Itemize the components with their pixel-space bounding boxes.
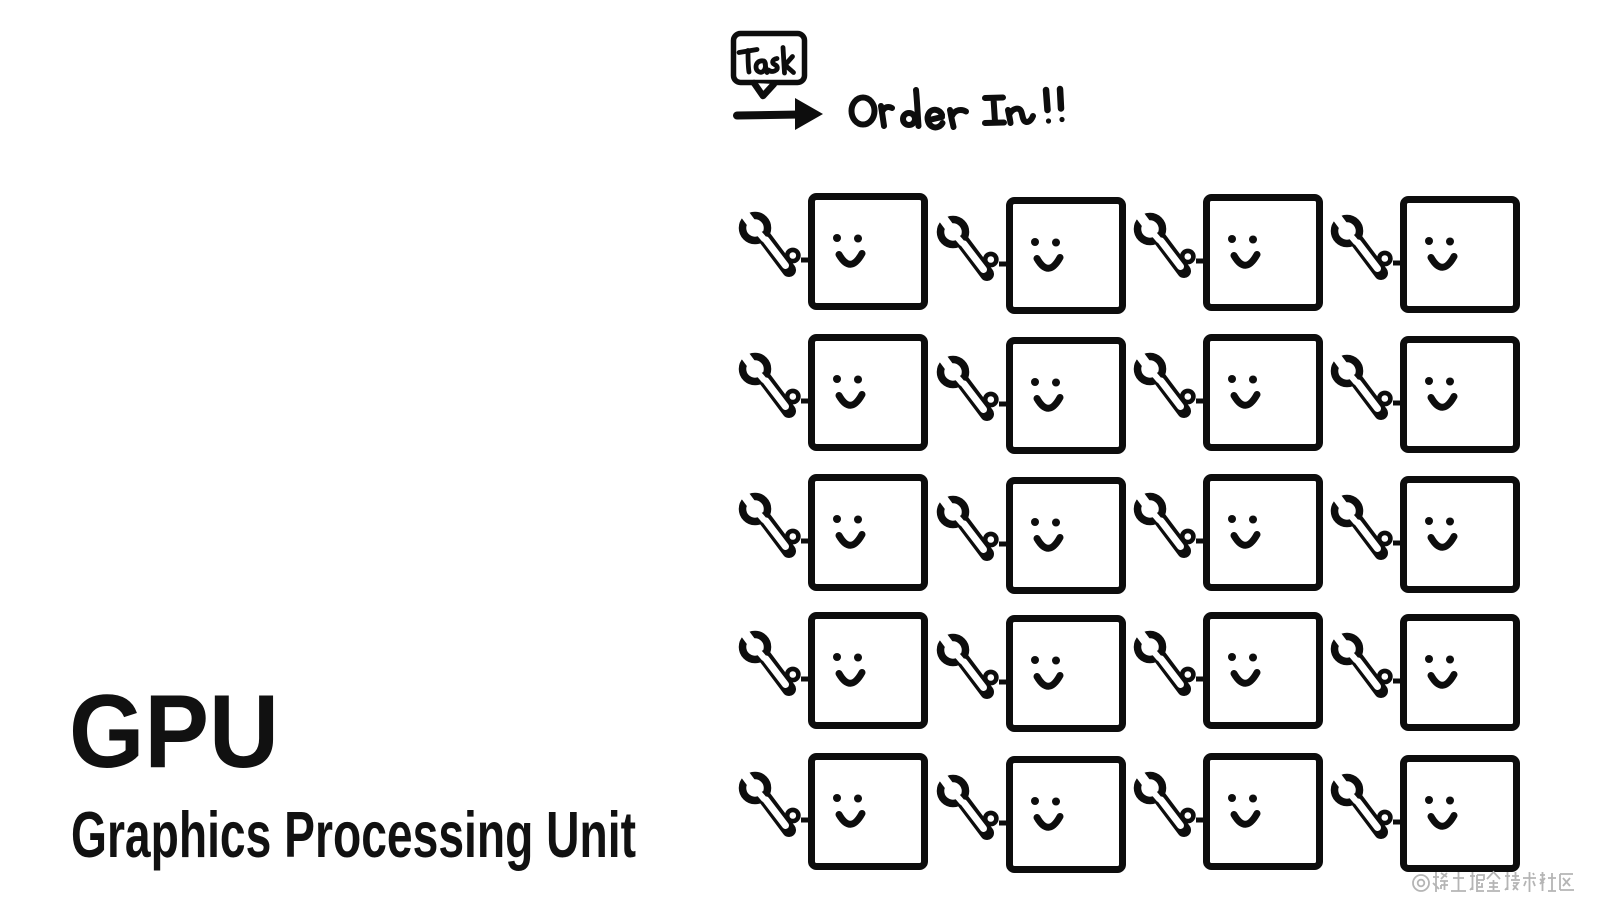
- svg-text:Graphics Processing Unit: Graphics Processing Unit: [71, 798, 636, 871]
- svg-text:GPU: GPU: [69, 674, 279, 790]
